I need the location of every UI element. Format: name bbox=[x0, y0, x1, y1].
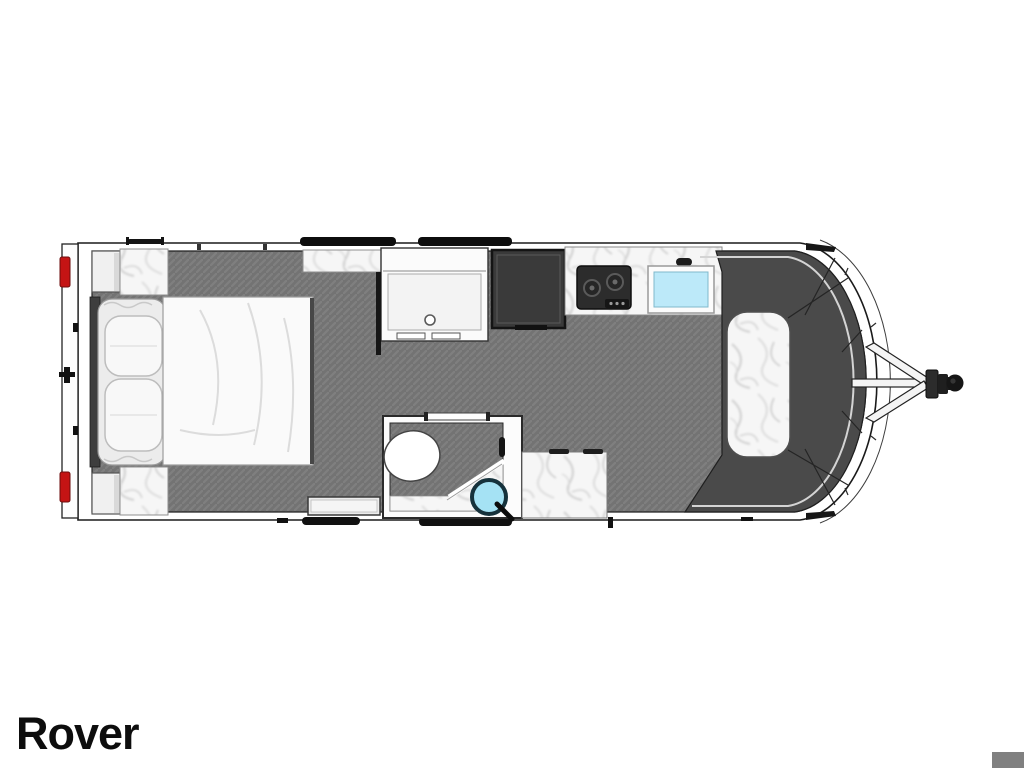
bathroom-group bbox=[379, 412, 522, 519]
kitchen-group bbox=[565, 247, 722, 315]
wall-tick-1 bbox=[197, 244, 201, 250]
tow-ball-highlight bbox=[950, 378, 955, 383]
nightstand-top-edge bbox=[114, 253, 119, 291]
cooktop-knob-3 bbox=[621, 302, 624, 305]
bathroom-door-stop-left bbox=[424, 412, 428, 421]
bumper-bracket-top bbox=[73, 323, 78, 332]
burner-2-center bbox=[613, 280, 618, 285]
kitchen-sink-basin bbox=[654, 272, 708, 307]
fridge-group bbox=[492, 250, 565, 330]
corner-accent-square bbox=[992, 752, 1024, 768]
roof-rail-end-right bbox=[161, 237, 164, 245]
bottom-bracket-1 bbox=[277, 518, 288, 523]
roof-rail-end-left bbox=[126, 237, 129, 245]
bed-foot-edge bbox=[310, 298, 314, 464]
burner-1-center bbox=[590, 286, 595, 291]
tail-light-right bbox=[60, 472, 70, 502]
refrigerator-vent bbox=[515, 325, 547, 330]
dinette-table bbox=[727, 312, 790, 457]
tow-ball bbox=[947, 375, 964, 392]
marble-top-rear-2 bbox=[120, 467, 168, 515]
tail-light-left bbox=[60, 257, 70, 287]
wardrobe-side-rail bbox=[376, 272, 381, 355]
counter-handle-1 bbox=[549, 449, 569, 454]
nose-tick-2 bbox=[871, 323, 876, 327]
drain-outlet bbox=[608, 517, 613, 528]
roof-rail-small bbox=[128, 239, 162, 244]
wall-tick-2 bbox=[263, 244, 267, 250]
wardrobe-handle bbox=[425, 315, 435, 325]
floorplan-drawing: Rover bbox=[0, 0, 1024, 768]
floorplan-page: Rover bbox=[0, 0, 1024, 768]
nose-tick-3 bbox=[871, 436, 876, 440]
cooktop-knob-1 bbox=[609, 302, 612, 305]
entry-step-tread bbox=[311, 500, 377, 512]
wardrobe-pull-2 bbox=[432, 333, 460, 339]
cooktop-knob-2 bbox=[615, 302, 618, 305]
wardrobe-group bbox=[376, 248, 488, 355]
awning-rail-1 bbox=[300, 237, 396, 246]
refrigerator bbox=[492, 250, 565, 328]
bathroom-door bbox=[427, 413, 487, 420]
bathroom-side-counter bbox=[522, 452, 607, 518]
awning-rail-2 bbox=[418, 237, 512, 246]
marble-top-rear-1 bbox=[120, 249, 168, 295]
bumper-bracket-bottom bbox=[73, 426, 78, 435]
counter-handle-2 bbox=[583, 449, 603, 454]
bed-group bbox=[90, 297, 314, 467]
model-title: Rover bbox=[16, 708, 139, 759]
bottom-bracket-2 bbox=[741, 517, 753, 521]
bumper-handle-post bbox=[64, 367, 70, 383]
bathroom-door-handle bbox=[499, 437, 505, 457]
rear-bumper-group bbox=[59, 244, 78, 518]
coupler-block-1 bbox=[926, 370, 938, 398]
wardrobe-pull-1 bbox=[397, 333, 425, 339]
kitchen-faucet bbox=[676, 258, 692, 266]
entry-step-shadow bbox=[302, 517, 360, 525]
marble-counter-strip bbox=[303, 250, 381, 272]
nightstand-bottom-edge bbox=[114, 475, 119, 513]
bathroom-door-stop-right bbox=[486, 412, 490, 421]
